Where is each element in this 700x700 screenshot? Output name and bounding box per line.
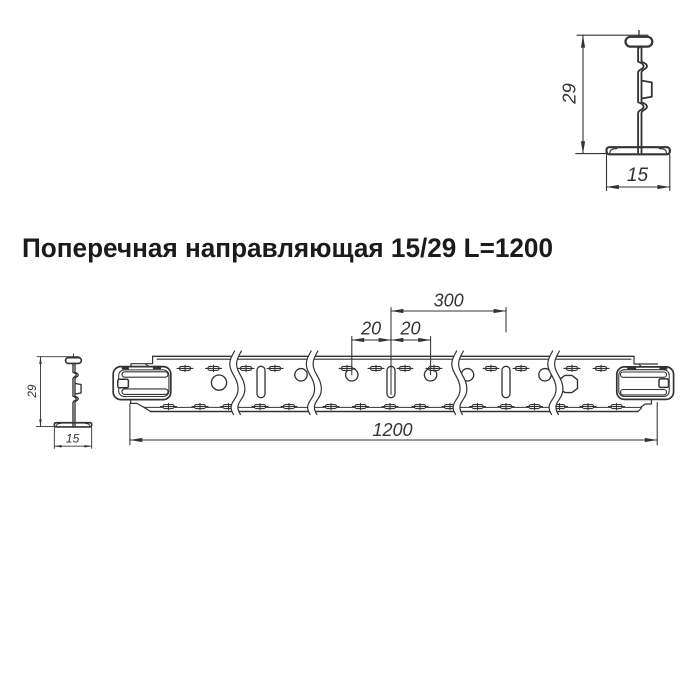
svg-text:1200: 1200	[372, 420, 412, 440]
svg-text:300: 300	[434, 290, 464, 310]
svg-text:Поперечная направляющая 15/29: Поперечная направляющая 15/29 L=1200	[22, 233, 553, 263]
svg-text:20: 20	[399, 319, 420, 339]
svg-text:20: 20	[360, 319, 381, 339]
